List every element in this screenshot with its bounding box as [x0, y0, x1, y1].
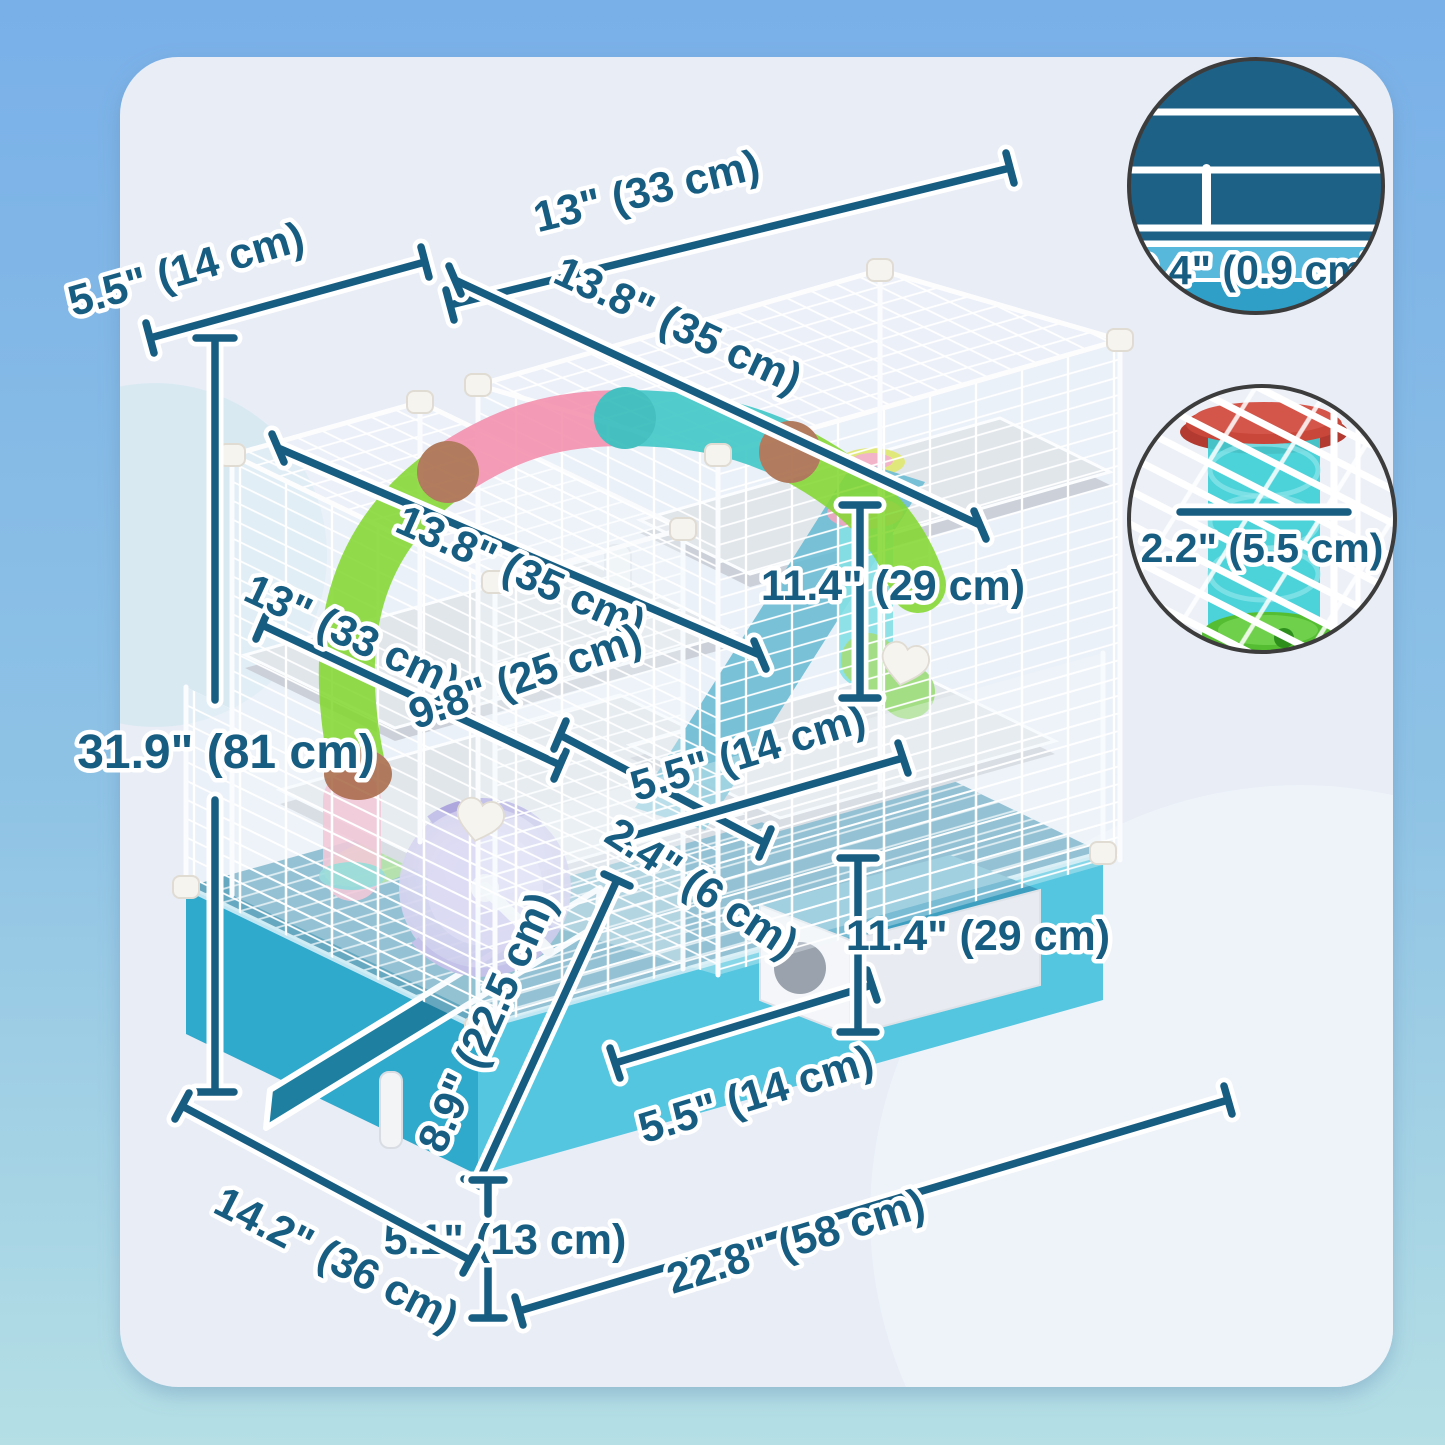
dim-lower-height-label: 11.4" (29 cm): [846, 912, 1110, 960]
wire-gap-tick: [1202, 164, 1211, 228]
dim-upper-height-label: 11.4" (29 cm): [761, 562, 1025, 610]
tub-latch: [380, 1072, 402, 1148]
diagram-canvas: 13" (33 cm) 13.8" (35 cm) 5.5" (14 cm) 1…: [0, 0, 1445, 1445]
inset-tube-diameter-label: 2.2" (5.5 cm): [1141, 525, 1384, 571]
inset-tube-diameter: 2.2" (5.5 cm): [1129, 386, 1395, 656]
dim-total-height-label: 31.9" (81 cm): [77, 726, 375, 779]
screenshot-root: 13" (33 cm) 13.8" (35 cm) 5.5" (14 cm) 1…: [0, 0, 1445, 1445]
